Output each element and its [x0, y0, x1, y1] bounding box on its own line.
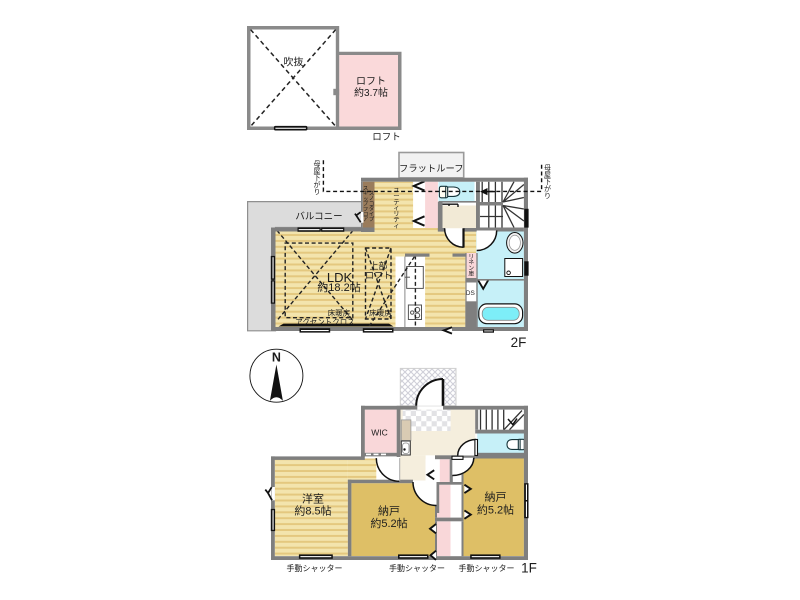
svg-text:約18.2帖: 約18.2帖 [317, 280, 360, 294]
svg-text:ロフト: ロフト [372, 132, 401, 143]
svg-text:約5.2帖: 約5.2帖 [477, 503, 514, 517]
svg-text:手動シャッター: 手動シャッター [459, 563, 515, 573]
svg-text:約8.5帖: 約8.5帖 [294, 504, 331, 518]
svg-text:フラットルーフ: フラットルーフ [399, 164, 464, 174]
svg-text:手動シャッター: 手動シャッター [287, 563, 343, 573]
svg-text:WIC: WIC [371, 428, 388, 438]
svg-text:ユーティリティ: ユーティリティ [393, 187, 399, 229]
svg-text:N: N [272, 351, 281, 365]
svg-text:アクセントクロス: アクセントクロス [295, 318, 355, 327]
svg-text:約3.7帖: 約3.7帖 [354, 86, 388, 99]
svg-text:リネン庫: リネン庫 [468, 255, 474, 278]
svg-text:納戸: 納戸 [485, 491, 507, 504]
svg-text:床暖房: 床暖房 [328, 308, 351, 318]
svg-text:DS: DS [466, 290, 476, 297]
svg-text:母屋下がり: 母屋下がり [544, 164, 551, 200]
svg-text:吹抜: 吹抜 [284, 56, 304, 69]
svg-text:ロフト: ロフト [356, 77, 386, 88]
svg-text:ロフト: ロフト [365, 271, 392, 281]
svg-text:バルコニー: バルコニー [295, 212, 342, 223]
svg-text:2F: 2F [511, 335, 527, 350]
svg-text:1F: 1F [521, 561, 537, 576]
svg-text:スノコタイプ: スノコタイプ [369, 190, 375, 223]
svg-text:洋室: 洋室 [302, 492, 324, 506]
svg-text:母屋下がり: 母屋下がり [314, 160, 321, 196]
svg-text:上部: 上部 [369, 260, 387, 271]
svg-text:約5.2帖: 約5.2帖 [370, 516, 407, 530]
svg-text:納戸: 納戸 [378, 505, 400, 518]
svg-text:手動シャッター: 手動シャッター [389, 563, 445, 573]
